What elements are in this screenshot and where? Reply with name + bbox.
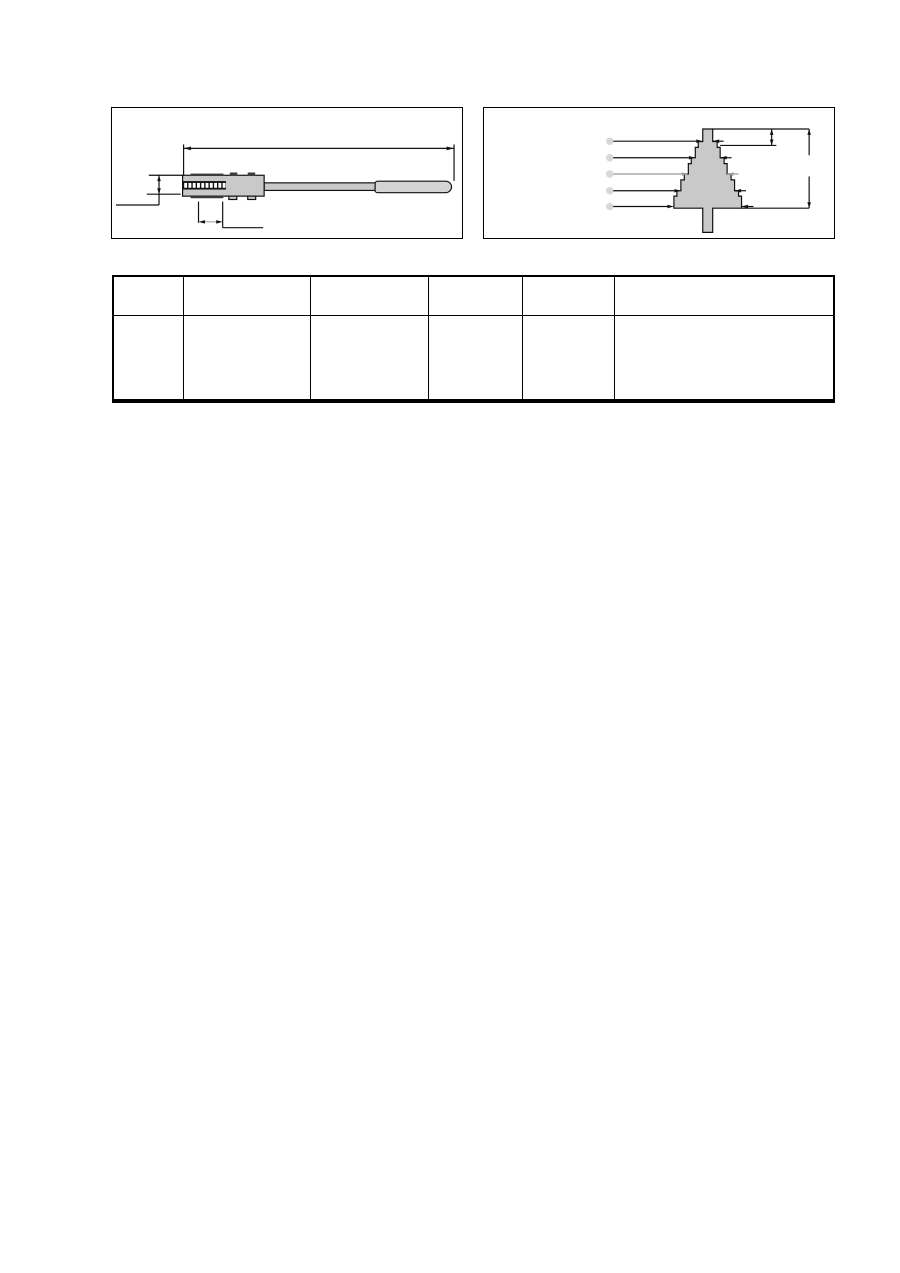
header-cell <box>522 276 614 316</box>
top-blade-strip <box>191 174 224 176</box>
step-height-dimension <box>713 129 809 145</box>
file-tool-drawing <box>112 108 462 238</box>
header-cell <box>614 276 834 316</box>
table-cell <box>522 316 614 402</box>
table-cell <box>614 316 834 402</box>
table-header-row <box>113 276 834 316</box>
table-cell <box>428 316 522 402</box>
table-cell <box>113 316 183 402</box>
stepped-cone-shape <box>674 129 742 232</box>
header-cell <box>428 276 522 316</box>
document-page <box>0 0 900 1273</box>
figure-right-box <box>483 107 835 239</box>
spec-table <box>112 275 835 403</box>
body-height-dimension <box>116 175 183 205</box>
header-cell <box>113 276 183 316</box>
table-cell <box>183 316 310 402</box>
tool-handle <box>375 181 451 193</box>
table-cell <box>310 316 428 402</box>
stepped-cone-drawing <box>484 108 834 238</box>
bottom-lug-1 <box>229 196 237 199</box>
header-cell <box>183 276 310 316</box>
bottom-lug-2 <box>248 196 256 199</box>
header-cell <box>310 276 428 316</box>
figure-left-box <box>111 107 463 239</box>
overall-height-dimension <box>742 129 811 208</box>
tool-shape <box>183 173 452 200</box>
tooth-section-dimension <box>199 202 264 228</box>
table-row <box>113 316 834 402</box>
top-lug-1 <box>230 173 237 176</box>
bottom-blade-strip <box>191 196 224 198</box>
top-lug-2 <box>248 173 255 176</box>
teeth-band <box>183 181 226 189</box>
leader-balloon-ghosts <box>606 137 614 210</box>
tool-shaft <box>264 183 376 191</box>
